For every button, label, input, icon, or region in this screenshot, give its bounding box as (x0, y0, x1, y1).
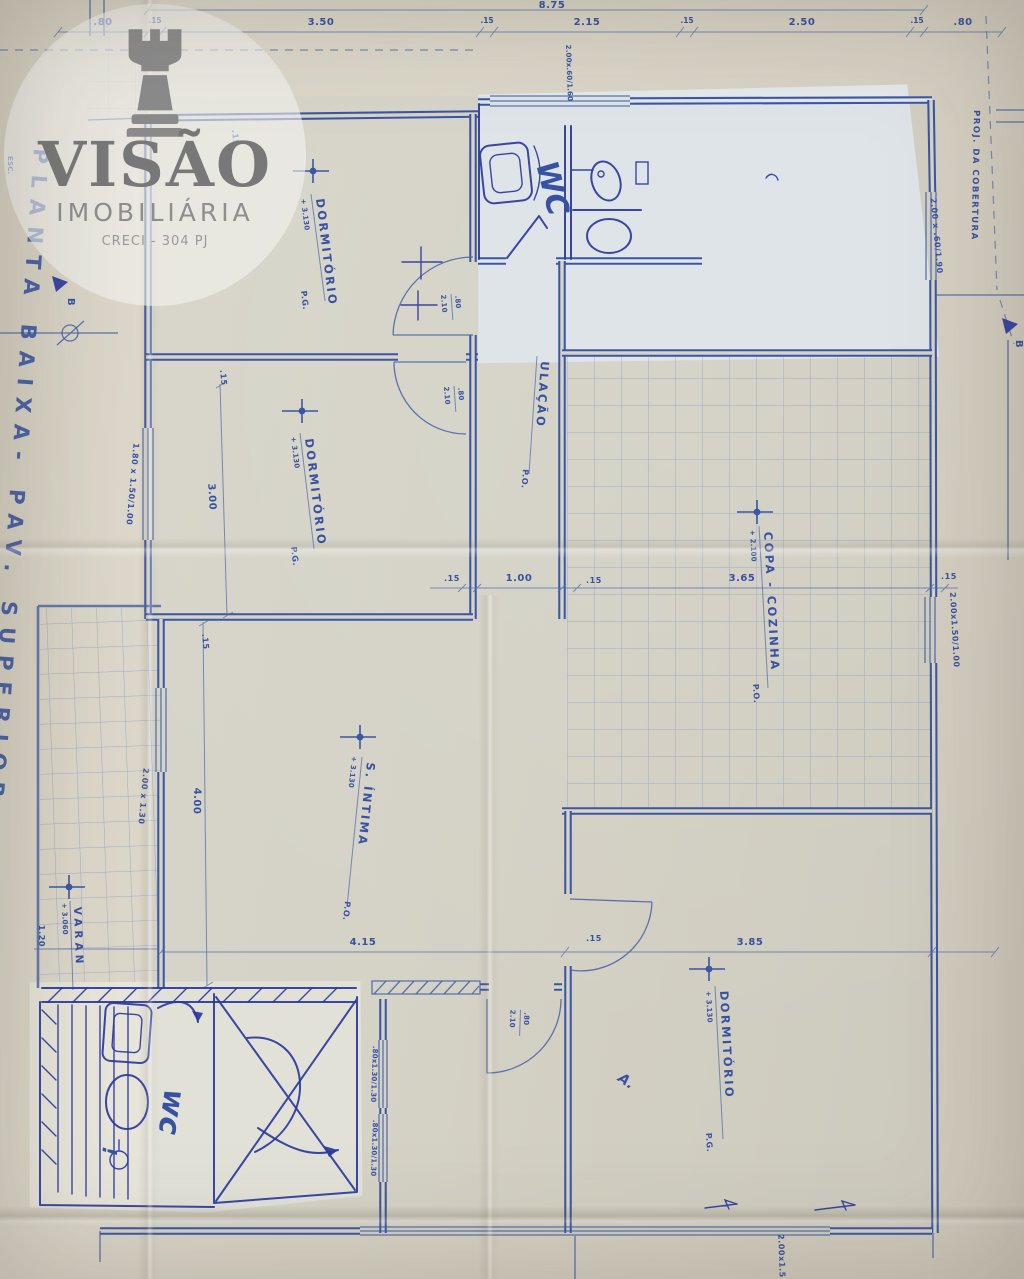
watermark-license: CRECI - 304 PJ (102, 234, 209, 249)
dim-15-c: .15 (200, 633, 211, 650)
shower-hatch (42, 1010, 56, 1164)
dim-365: 3.65 (729, 573, 756, 584)
room-floor-circulacao: P.O. (520, 469, 530, 489)
door-dim-h: 2.10 (508, 1010, 517, 1028)
dim-15-right: .15 (941, 572, 957, 581)
wall-stubs-bottom (100, 1231, 933, 1279)
dim-top-6: 2.50 (789, 17, 816, 28)
elevation-dot (310, 168, 317, 175)
rook-icon (111, 26, 199, 138)
dim-total: 8.75 (539, 0, 566, 11)
rook-band-1 (132, 114, 179, 124)
shower-stripes (58, 1005, 128, 1199)
window-label-dorm2-left: 1.80 x 1.50/1.00 (124, 443, 140, 526)
room-elev-dorm3: + 3.130 (704, 991, 714, 1023)
dim-15-corr-l: .15 (444, 574, 460, 583)
elevation-dot (66, 884, 73, 891)
wc-lower-mark: ! (97, 1146, 122, 1157)
sink-outer (102, 1002, 152, 1063)
watermark-brand: VISÃO (38, 134, 272, 196)
rook-head (129, 29, 182, 71)
door-dim-w: .80 (456, 387, 465, 401)
elevation-dot (357, 734, 364, 741)
section-marker-right: B (1013, 340, 1024, 348)
door-dim-h: 2.10 (439, 294, 448, 313)
blueprint-photo: 8.75 .80 .15 3.50 .15 2.15 .15 2.50 .15 … (0, 0, 1024, 1279)
room-floor-copa: P.O. (751, 684, 761, 704)
door-dim-w: .80 (522, 1012, 530, 1025)
dim-385: 3.85 (737, 937, 764, 948)
dim-400: 4.00 (191, 788, 202, 815)
dim-top-3: .15 (480, 16, 493, 25)
window-label-bath-top: 2.00x.60/1.60 (564, 44, 574, 101)
elevation-dot (299, 408, 306, 415)
rook-body (137, 75, 172, 110)
toilet-lower (106, 1075, 148, 1129)
dim-top-7: .15 (910, 16, 923, 25)
dim-15-b: .15 (218, 369, 229, 386)
elevation-dot (706, 966, 713, 973)
window-label-bottom: 2.00x1.5 (776, 1234, 787, 1278)
sink-inner (112, 1013, 143, 1053)
door-dim-h: 2.10 (442, 386, 451, 405)
dim-top-8: .80 (953, 17, 972, 28)
dim-top-4: 2.15 (574, 17, 601, 28)
room-label-varanda: VARAN (71, 907, 85, 968)
watermark-subtitle: IMOBILIÁRIA (56, 198, 253, 227)
room-floor-dorm3: P.G. (704, 1133, 714, 1153)
dim-15-d: .15 (586, 934, 602, 943)
elevation-dot (754, 509, 761, 516)
window-label-copa-right: 2.00x1.50/1.00 (948, 592, 961, 668)
dim-top-2: 3.50 (308, 17, 335, 28)
section-marker-triangle-left (52, 276, 68, 292)
agency-watermark: VISÃO IMOBILIÁRIA CRECI - 304 PJ (4, 4, 306, 306)
room-elev-copa: + 2.100 (748, 530, 758, 562)
copa-tile-grid (567, 357, 932, 811)
dim-120: 1.20 (37, 925, 46, 947)
roof-dash-right (986, 16, 997, 290)
dim-15-corr-r: .15 (586, 576, 602, 585)
sink-lower (102, 1002, 152, 1063)
dim-100: 1.00 (506, 573, 533, 584)
margin-title-right: PROJ. DA COBERTURA (969, 110, 981, 241)
dim-415: 4.15 (350, 937, 377, 948)
dim-top-5: .15 (680, 16, 693, 25)
dim-300: 3.00 (205, 483, 217, 510)
wc-lower-label: wc (151, 1087, 192, 1137)
room-elev-varanda: + 3.060 (60, 903, 69, 935)
dim-line-total (144, 5, 928, 15)
door-dim-w: .80 (453, 295, 462, 309)
section-marker-left: B (65, 298, 76, 306)
